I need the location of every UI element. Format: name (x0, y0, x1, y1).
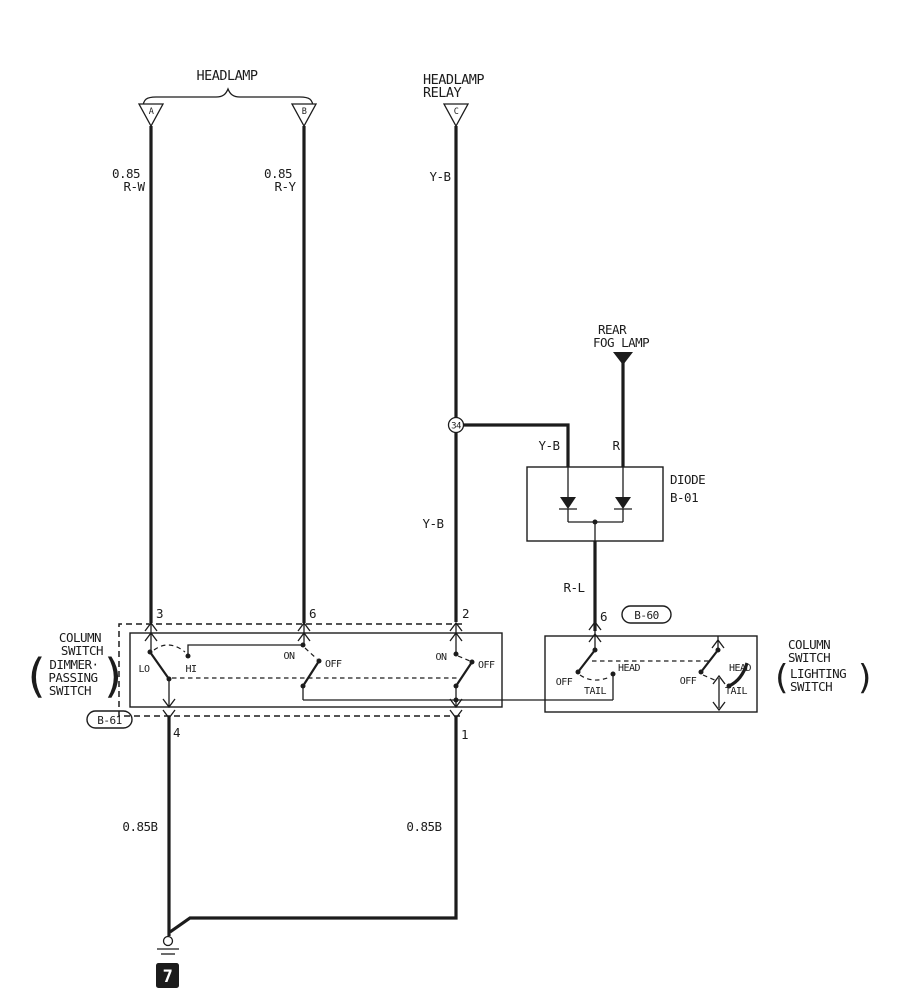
diode-box: DIODE B-01 (527, 467, 705, 541)
ground-circle-icon (164, 937, 173, 946)
relay-label-line2: RELAY (423, 85, 462, 101)
lsw1-off-label: OFF (556, 677, 573, 688)
on2-contact-label: ON (435, 652, 447, 663)
diode-name-label: DIODE (670, 472, 705, 487)
rear-fog-label-line2: FOG LAMP (593, 335, 649, 350)
connector-b: B (292, 104, 316, 126)
b60-ref-label: B-60 (634, 609, 659, 622)
lo-hi-travel-arc (154, 645, 185, 652)
lsw2-off-label: OFF (680, 676, 697, 687)
lsw2-blade (701, 650, 718, 672)
pin3-label: 3 (156, 606, 163, 621)
lsw1-tail-label: TAIL (584, 686, 607, 697)
dimmer-name-line2: SWITCH (61, 643, 103, 658)
hi-contact-label: HI (185, 664, 197, 675)
lsw1-head-label: HEAD (618, 663, 641, 674)
headlamp-label: HEADLAMP (196, 68, 257, 84)
on2-off2-travel (458, 656, 470, 661)
dimmer-passing-switch: 3 6 2 LO HI ON OFF ON OFF (22, 606, 613, 742)
wire-c-color-label-mid: Y-B (422, 516, 443, 531)
lighting-switch-name: COLUMN SWITCH ( LIGHTING SWITCH ) (771, 637, 875, 698)
lighting-paren-open: ( (771, 658, 791, 698)
lsw2-blade-dot (699, 670, 704, 675)
splice-node-number: 34 (451, 422, 461, 432)
branch-color-label: Y-B (538, 438, 559, 453)
lo-contact-label: LO (138, 664, 150, 675)
headlamp-brace (143, 89, 313, 108)
on1-off1-travel (305, 648, 317, 659)
dimmer-paren-open: ( (22, 649, 49, 703)
diode-ref-label: B-01 (670, 490, 698, 505)
switch1-blade (303, 661, 319, 686)
b61-ref-label: B-61 (97, 714, 122, 727)
connector-a-letter: A (149, 107, 154, 117)
ground-left-gauge-label: 0.85B (122, 819, 157, 834)
on1-contact-dot (301, 643, 306, 648)
wiring-diagram-canvas: HEADLAMP A B HEADLAMP RELAY C 0.85 R-W 0… (0, 0, 922, 1002)
dimmer-paren-close: ) (100, 649, 127, 703)
off1-contact-label: OFF (325, 659, 342, 670)
wire-c-color-label-top: Y-B (429, 169, 450, 184)
pin2-label: 2 (462, 606, 469, 621)
wire-a-color-label: R-W (123, 179, 145, 194)
diode-left-icon (560, 497, 576, 509)
pin4-label: 4 (173, 725, 180, 740)
b60-pin-number: 6 (600, 609, 607, 624)
wire-b-color-label: R-Y (274, 179, 296, 194)
dimmer-switch-name: COLUMN SWITCH ( DIMMER· PASSING SWITCH )… (22, 630, 132, 728)
connector-c-letter: C (454, 107, 459, 117)
on1-contact-label: ON (283, 651, 295, 662)
lsw1-travel-arc (580, 675, 610, 680)
headlamp-relay-section: HEADLAMP RELAY C (423, 72, 484, 126)
lighting-sub-line2: SWITCH (790, 679, 832, 694)
ground-right-gauge-label: 0.85B (406, 819, 441, 834)
ground-ref-badge: 7 (156, 963, 179, 988)
b60-connector-ref: 6 B-60 (600, 606, 671, 624)
splice-node-34: 34 Y-B (449, 418, 569, 468)
lsw1-blade-dot (576, 670, 581, 675)
ground-badge-number: 7 (163, 967, 173, 987)
lighting-paren-close: ) (855, 658, 875, 698)
dimmer-dashed-boundary (119, 624, 462, 716)
ground-symbol (157, 937, 179, 955)
rl-color-label: R-L (563, 580, 584, 595)
headlamp-section: HEADLAMP A B (139, 68, 316, 126)
lsw2-travel-dash (703, 675, 717, 681)
diode-right-icon (615, 497, 631, 509)
rear-fog-lamp-feed: REAR FOG LAMP R (593, 322, 649, 467)
rail-junction-dot (454, 698, 459, 703)
connector-b-letter: B (302, 107, 307, 117)
pin1-label: 1 (461, 727, 468, 742)
dimmer-sub-line3: SWITCH (49, 683, 91, 698)
on2-contact-dot (454, 652, 459, 657)
off2-contact-label: OFF (478, 660, 495, 671)
fog-wire-color-label: R (612, 438, 620, 453)
switch2-blade (456, 662, 472, 686)
dimmer-blade (150, 652, 169, 679)
connector-a: A (139, 104, 163, 126)
pin6-label: 6 (309, 606, 316, 621)
lighting-name-line2: SWITCH (788, 650, 830, 665)
lsw2-tail-label: TAIL (725, 686, 748, 697)
connector-c: C (444, 104, 468, 126)
wiring-diagram-page: HEADLAMP A B HEADLAMP RELAY C 0.85 R-W 0… (0, 0, 922, 1002)
ground-path: 0.85B 0.85B 7 (122, 716, 456, 988)
